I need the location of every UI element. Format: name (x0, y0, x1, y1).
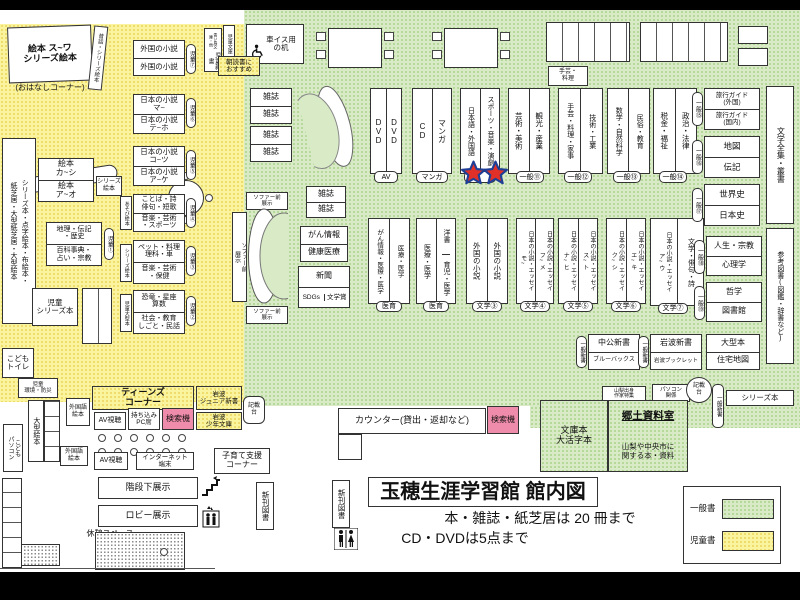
lending-rule-books: 本・雑誌・紙芝居は 20 冊まで (425, 510, 655, 528)
shelf-col: 観光・産業 (529, 89, 550, 173)
shelf-cell: 地理・伝記 ・歴史 (47, 223, 101, 244)
table-chair (432, 32, 442, 41)
local-history-room-title: 郷土資料室 (609, 401, 687, 432)
letterbox-top (0, 0, 800, 10)
tag-jido-1: 児童① (104, 228, 114, 260)
shelf-cell: 人生・宗教 (707, 237, 761, 256)
legend-row-children: 児童書 (690, 531, 774, 551)
kids-pets-cooking-shelf: ペット・料理 理科・車 音楽・芸術 ・保健 (133, 240, 185, 284)
tag-bungaku-4: 文学④ (520, 301, 550, 312)
shelf-cell: ことば・詩 俳句・短歌 (134, 195, 184, 213)
search-terminal-2: 検索機 (487, 406, 519, 434)
kids-jp-novels-ko-shelf: 日本の小説 コ~ツ 日本の小説 ア~ケ (133, 146, 185, 186)
shelf-pair-medical-foreignbooks: 医療・医学 洋書 育児・医学 (416, 218, 456, 304)
shelf-col: 手芸・料理・家事 (559, 89, 580, 173)
series-braille-kamishibai-shelf: シリーズ本・点字絵本・布絵本・ 紙芝居・大型紙芝居・大型絵本 (2, 138, 36, 324)
shelf-cell: 雑誌 (251, 127, 291, 144)
iwanami-shinsho-shelf: 岩波新書 岩波ブックレット (650, 334, 702, 370)
tag-manga: マンガ (416, 171, 448, 183)
tag-jido-2: 児童② (186, 296, 196, 326)
kids-jp-novels-ma-shelf: 日本の小説 マ~ 日本の小説 テ~ホ (133, 94, 185, 134)
lobby-display: ロビー展示 (98, 505, 198, 527)
shelf-cell: 日本史 (705, 205, 759, 226)
crescent-sofa (248, 208, 288, 309)
shelf-cell: 岩波新書 (651, 335, 701, 352)
kids-shelf-block (82, 288, 112, 344)
shelf-cell: 雑誌 (307, 202, 345, 218)
internet-terminal: インターネット 端末 (136, 452, 194, 470)
letterbox-bottom (0, 572, 800, 600)
teens-corner: ティーンズ コーナー (92, 386, 194, 410)
legend: 一般書 児童書 (683, 486, 781, 564)
tag-iiku-2: 医育 (423, 301, 449, 312)
play-picturebook-side-label: あそび絵本 (120, 196, 132, 230)
teens-chair (162, 434, 170, 442)
table-chair (500, 32, 510, 41)
top-right-box-2 (738, 48, 768, 66)
tag-jido-7: 児童⑦ (186, 44, 196, 74)
shelf-cell: 音楽・芸術 ・スポーツ (134, 213, 184, 232)
tag-jido-3: 児童③ (186, 246, 196, 276)
library-floor-map: 絵本 ス~ワ シリーズ絵本 昔話・シリーズ絵本 (おはなしコーナー) ちしきの絵… (0, 0, 800, 600)
foreign-language-picturebook-shelf-2: 外国語 絵本 (60, 446, 88, 466)
yosho-cell: 洋書 (442, 219, 450, 254)
shelf-cell: 大型本 (707, 335, 759, 352)
shelf-pair-foreign-novels: 外国の小説 外国の小説 (466, 218, 508, 304)
shelf-cell: 哲学 (707, 283, 761, 302)
history-shelf: 世界史 日本史 (704, 184, 760, 226)
table-chair (432, 50, 442, 59)
shelf-cell: 日本の小説 コ~ツ (134, 147, 184, 166)
shelf-cell: 世界史 (705, 185, 759, 205)
ikuji-cell: 育児・医学 (442, 254, 450, 303)
tag-ippan-14: 一般⑭ (659, 171, 687, 183)
elevator-icon (202, 504, 220, 533)
shelf-col: マンガ (432, 89, 452, 173)
under-stairs-display: 階段下展示 (98, 477, 198, 499)
shelf-cell: 住宅地図 (707, 352, 759, 370)
page-title: 玉穂生涯学習館 館内図 (368, 477, 598, 507)
teens-chair (178, 434, 186, 442)
top-shelf-cluster-1 (546, 22, 630, 62)
tag-ippan-17: 一般⑰ (692, 188, 703, 222)
reading-table (328, 28, 382, 68)
kids-language-poetry-shelf: ことば・詩 俳句・短歌 音楽・芸術 ・スポーツ (133, 194, 185, 232)
service-counter: カウンター(貸出・返却など) (338, 408, 486, 434)
split-col: 洋書 育児・医学 (436, 219, 456, 303)
kids-geography-encyclopedia-shelf: 地理・伝記 ・歴史 百科事典・ 占い・宗教 (46, 222, 102, 266)
tag-ippan-12: 一般⑫ (564, 171, 592, 183)
reading-table (444, 28, 498, 68)
shelf-cell: 新聞 (299, 267, 349, 287)
legend-children-label: 児童書 (690, 536, 716, 545)
shelf-col: DVD (371, 89, 386, 173)
shelf-col: 日本の小説・エッセイ ア~ウ (651, 219, 677, 305)
cancer-info-health-shelf: がん情報 健康医療 (300, 226, 348, 262)
local-history-room: 郷土資料室 山梨や中央市に 関する本・資料 (608, 400, 688, 472)
picturebook-corner-shelf: 絵本 ス~ワ シリーズ絵本 (7, 25, 93, 84)
shelf-col: 外国の小説 (487, 219, 508, 303)
teens-chair (146, 434, 154, 442)
bunko-large-print-area: 文庫本 大活字本 (540, 400, 608, 472)
map-canvas: 絵本 ス~ワ シリーズ絵本 昔話・シリーズ絵本 (おはなしコーナー) ちしきの絵… (0, 10, 800, 572)
shelf-col: DVD (386, 89, 402, 173)
shelf-col: 外国の小説 (467, 219, 487, 303)
tag-jido-6: 児童⑥ (186, 98, 196, 128)
tag-jido-4: 児童④ (186, 198, 196, 228)
kids-series-books-shelf: 児童 シリーズ本 (32, 288, 78, 326)
shelf-col: がん情報・医療・医学 (369, 219, 389, 303)
teens-chair (114, 434, 122, 442)
teens-chair (130, 434, 138, 442)
map-biography-shelf: 地図 伝記 (704, 136, 760, 178)
shelf-pair-cd-manga: CD マンガ (412, 88, 452, 174)
service-counter-return (338, 434, 362, 460)
floor-boundary-line (0, 568, 215, 569)
tag-bungaku-5: 文学⑤ (563, 301, 593, 312)
av-viewing-seat-1: AV視聴 (94, 412, 126, 430)
av-viewing-seat-2: AV視聴 (94, 452, 128, 470)
kids-environment-disaster-shelf: 児童 環境・防災 (18, 378, 58, 398)
foreign-language-picturebook-shelf-1: 外国語 絵本 (66, 398, 90, 426)
shelf-col: 芸術・美術 (509, 89, 529, 173)
shelf-cell: 伝記 (705, 157, 759, 178)
shelf-cell: 岩波ブックレット (651, 352, 701, 370)
kids-dinosaur-society-shelf: 恐竜・星座 算数 社会・教育 しごと・民話 (133, 290, 185, 334)
shelf-cell: 日本の小説 テ~ホ (134, 114, 184, 134)
newspaper-shelf: 新聞 SDGs 文学賞 (298, 266, 350, 308)
shelf-cell: 旅行ガイド (国内) (705, 109, 759, 130)
shelf-cell: ブルーバックス (589, 352, 639, 370)
restroom-icon (334, 528, 358, 555)
newspaper-sub-row: SDGs 文学賞 (299, 287, 349, 308)
shelf-col: 日本の小説・エッセイ フ~メ (535, 219, 554, 303)
shelf-cell: 外国の小説 (134, 41, 184, 58)
table-chair (316, 32, 326, 41)
shelf-col: 日本の小説・エッセイ ス~ト (578, 219, 598, 303)
tag-av: AV (374, 171, 398, 183)
local-history-room-desc: 山梨や中央市に 関する本・資料 (609, 432, 687, 471)
shelf-cell: 社会・教育 しごと・民話 (134, 312, 184, 334)
rest-chair (160, 548, 168, 556)
chuko-shinsho-shelf: 中公新書 ブルーバックス (588, 334, 640, 370)
shelf-cell: 図書館 (707, 302, 761, 322)
table-chair (316, 50, 326, 59)
shelf-col: 日本の小説・エッセイ エ~キ (626, 219, 646, 303)
iwanami-shonen-bunko-shelf: 岩波 少年文庫 (196, 412, 242, 430)
shelf-pair-tax-politics: 税金・福祉 政治・法律 (653, 88, 697, 174)
tag-bungaku-7: 文学⑦ (658, 303, 688, 314)
new-books-shelf-2: 新刊図書 (332, 480, 350, 528)
shelf-cell: 日本の小説 マ~ (134, 95, 184, 114)
kids-computer-station: こども パソコン (3, 424, 23, 472)
shelf-cell: 健康医療 (301, 244, 347, 262)
shelf-pair-craft-engineering: 手芸・料理・家事 技術・工業 (558, 88, 603, 174)
tag-bungaku-3: 文学③ (472, 301, 502, 312)
tag-ippan-19: 一般⑲ (694, 286, 705, 320)
shelf-cell: がん情報 (301, 227, 347, 244)
star-icon (483, 160, 508, 190)
shelf-cell: 地図 (705, 137, 759, 157)
shelf-cell: 音楽・芸術 ・保健 (134, 262, 184, 284)
shelf-pair-jp-essay-na: 日本の小説・エッセイ ナ~ヒ 日本の小説・エッセイ ス~ト (558, 218, 598, 304)
table-chair (500, 50, 510, 59)
reference-books-shelf: 参考図書(図鑑・辞書など) (766, 228, 794, 364)
literary-prize-cell: 文学賞 (324, 294, 350, 301)
shelf-cell: 恐竜・星座 算数 (134, 291, 184, 312)
top-right-box-1 (738, 26, 768, 44)
byod-pc-seat: 持ち込み PC席 (128, 408, 160, 430)
lending-rule-av: CD・DVDは5点まで (365, 530, 565, 548)
tag-iiku-1: 医育 (376, 301, 402, 312)
childcare-support-corner: 子育て支援 コーナー (214, 448, 270, 474)
top-shelf-cluster-2 (640, 22, 728, 62)
shelf-pair-jp-essay-ku: 日本の小説・エッセイ ク~シ 日本の小説・エッセイ エ~キ (606, 218, 646, 304)
writing-desk-1: 記載 台 (243, 396, 265, 424)
kids-foreign-novels-shelf: 外国の小説 外国の小説 (133, 40, 185, 76)
large-picturebook-cells (44, 400, 60, 462)
rest-space-area (95, 532, 185, 570)
storytelling-corner-label: (おはなしコーナー) (2, 82, 98, 94)
tag-jido-5: 児童⑤ (186, 150, 196, 180)
series-picturebook-box: シリーズ 絵本 (96, 176, 122, 196)
writing-desk-2: 記載 台 (686, 377, 712, 403)
shelf-pair-dvd: DVD DVD (370, 88, 402, 174)
tag-ippan-13: 一般⑬ (613, 171, 641, 183)
stairs-icon (200, 475, 220, 502)
shelf-pair-cancer-medical: がん情報・医療・医学 医療・医学 (368, 218, 410, 304)
shelf-cell: 心理学 (707, 256, 761, 276)
tag-ippan-shinsho-3: 一般新書 (712, 384, 724, 428)
shelf-col: 技術・工業 (580, 89, 602, 173)
shelf-cell: 百科事典・ 占い・宗教 (47, 244, 101, 266)
shelf-pair-jp-essay-mo: 日本の小説・エッセイ モ~ 日本の小説・エッセイ フ~メ (516, 218, 554, 304)
shelf-cell: 雑誌 (251, 144, 291, 162)
teens-chair (98, 434, 106, 442)
wheelchair-desk-label: 車イス用 の机 (266, 36, 296, 53)
tag-bungaku-6: 文学⑥ (611, 301, 641, 312)
shelf-cell: 日本の小説 ア~ケ (134, 166, 184, 186)
sofa-front-display-vertical: ソファー前 展示 (232, 212, 247, 302)
shelf-pair-science-education: 数学・自然科学 民俗・教育 (607, 88, 650, 174)
legend-children-swatch (722, 531, 774, 551)
shelf-cell: 中公新書 (589, 335, 639, 352)
shelf-col: 民俗・教育 (628, 89, 649, 173)
lobby-shelf-strip (2, 478, 22, 568)
aoitori-note: 青い鳥文庫・他 (209, 30, 218, 52)
shelf-cell: 雑誌 (251, 89, 291, 106)
life-religion-psychology-shelf: 人生・宗教 心理学 (706, 236, 762, 276)
shelf-col: 税金・福祉 (654, 89, 675, 173)
series-books-shelf: シリーズ本 (726, 390, 794, 406)
tag-ippan-18: 一般⑱ (694, 240, 705, 274)
series-picturebook-side-label: シリーズ絵本 (120, 244, 132, 282)
shelf-cell: 絵本 カ~シ (39, 159, 93, 180)
shelf-col: 医療・医学 (389, 219, 410, 303)
shelf-col: 日本の小説・エッセイ ク~シ (607, 219, 626, 303)
large-books-housing-map-shelf: 大型本 住宅地図 (706, 334, 760, 370)
shelf-cell: 雑誌 (307, 187, 345, 202)
legend-general-label: 一般書 (690, 504, 716, 513)
large-picturebook-shelf: 大型絵本 (28, 400, 44, 462)
shelf-cell: 絵本 ア~オ (39, 180, 93, 202)
iwanami-junior-shinsho-shelf: 岩波 ジュニア新書 (196, 386, 242, 410)
shelf-cell: 雑誌 (251, 106, 291, 124)
tag-ippan-15: 一般⑮ (692, 92, 703, 126)
sdgs-cell: SDGs (299, 294, 324, 301)
shelf-col: 日本の小説・エッセイ モ~ (517, 219, 535, 303)
philosophy-library-shelf: 哲学 図書館 (706, 282, 762, 322)
new-books-shelf-1: 新刊図書 (256, 482, 274, 530)
legend-general-swatch (722, 499, 774, 519)
handicraft-cooking-sign: 手芸・ 料理 (548, 66, 588, 86)
morning-reading-recommend-box: 朝読書に おすすめ (218, 56, 260, 76)
shelf-col: 医療・医学 (417, 219, 436, 303)
picturebook-ka-shelf: 絵本 カ~シ 絵本 ア~オ (38, 158, 94, 202)
shelf-cell: 旅行ガイド (外国) (705, 89, 759, 109)
literature-complete-works-shelf: 文学全集・叢書 (766, 86, 794, 224)
tag-ippan-11: 一般⑪ (516, 171, 544, 183)
magazine-shelf-1: 雑誌 雑誌 (250, 88, 292, 124)
table-chair (384, 50, 394, 59)
legend-row-general: 一般書 (690, 499, 774, 519)
kids-large-book-side-label: 児童大型本 (120, 294, 132, 332)
tag-ippan-shinsho-1: 一般新書 (576, 336, 587, 368)
shelf-col: 数学・自然科学 (608, 89, 628, 173)
shelf-col: 日本の小説・エッセイ ナ~ヒ (559, 219, 578, 303)
travel-guide-shelf: 旅行ガイド (外国) 旅行ガイド (国内) (704, 88, 760, 130)
magazine-shelf-2: 雑誌 雑誌 (250, 126, 292, 162)
search-terminal-1: 検索機 (162, 408, 194, 430)
shelf-cell: ペット・料理 理科・車 (134, 241, 184, 262)
magazine-shelf-3: 雑誌 雑誌 (306, 186, 346, 218)
kids-chair (205, 194, 213, 202)
tag-ippan-16: 一般⑯ (692, 140, 703, 174)
shelf-col: CD (413, 89, 432, 173)
kids-toilet: こども トイレ (2, 348, 34, 378)
shelf-cell: 外国の小説 (134, 58, 184, 76)
tag-ippan-shinsho-2: 一般新書 (638, 336, 649, 368)
shelf-pair-art-tourism: 芸術・美術 観光・産業 (508, 88, 550, 174)
table-chair (384, 32, 394, 41)
